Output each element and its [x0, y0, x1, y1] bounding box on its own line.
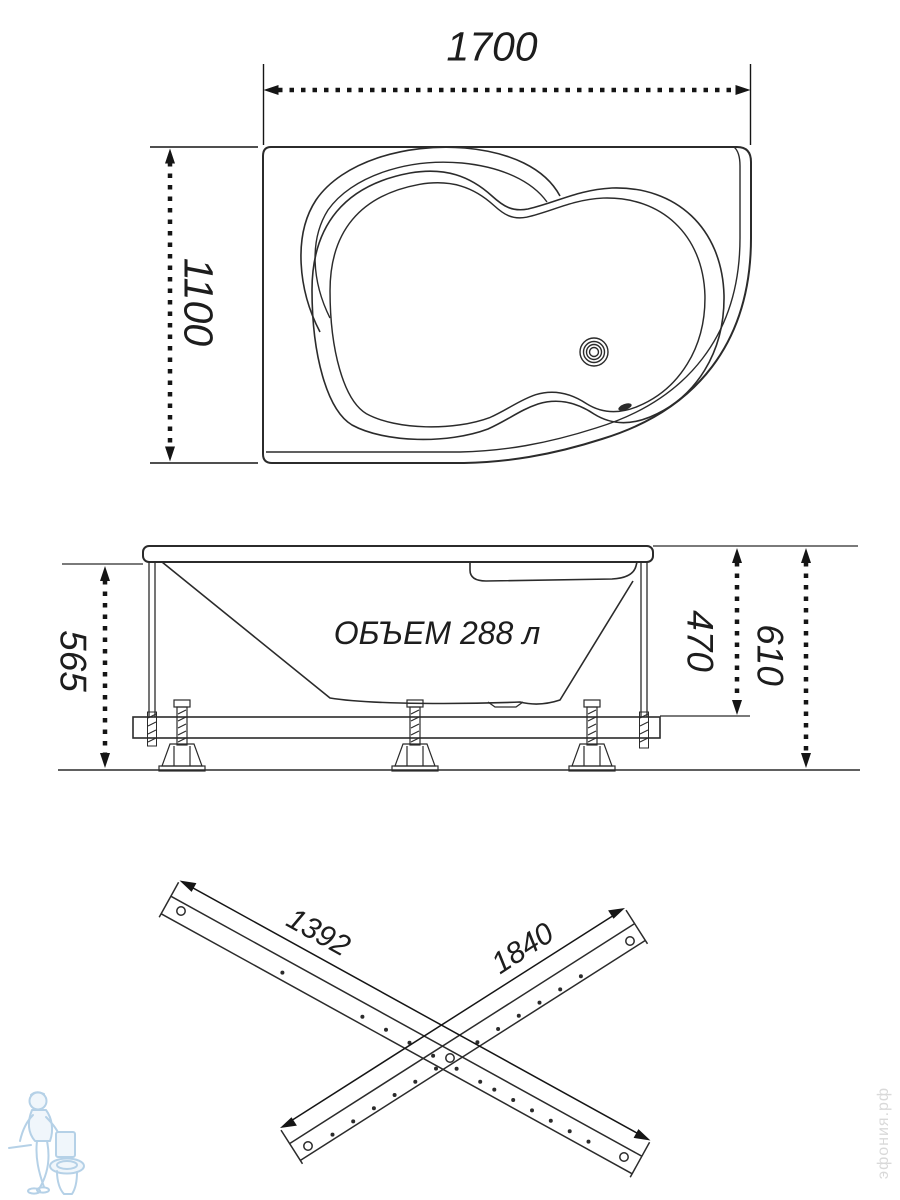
foot-right — [569, 700, 615, 771]
basin-inner-line — [330, 183, 705, 427]
frame-bar — [133, 717, 660, 738]
dimension-1392 — [180, 881, 651, 1141]
height-565-dimension-label: 565 — [55, 630, 92, 692]
adjustable-feet — [159, 700, 615, 771]
dimension-1700 — [264, 64, 751, 145]
drain-icon — [580, 338, 608, 366]
foot-middle — [392, 700, 438, 771]
basin-outline — [312, 171, 724, 439]
height-470-dimension-label: 470 — [682, 610, 719, 672]
dimension-470 — [732, 548, 742, 715]
rail-holes — [280, 971, 590, 1144]
site-watermark: эфония.рф — [875, 1087, 893, 1179]
blueprint-canvas: 1700 1100 ОБЪЕМ 288 л 565 470 610 1392 1… — [0, 0, 900, 1200]
foot-left — [159, 700, 205, 771]
bathtub-shell-outline — [263, 147, 751, 463]
dimension-565 — [100, 566, 110, 768]
rim-slab — [143, 546, 653, 562]
rail-holes — [331, 974, 583, 1136]
plan-depth-dimension-label: 1100 — [178, 258, 219, 346]
bathtub-technical-drawing — [0, 0, 900, 1200]
headrest-inner-line — [315, 162, 547, 318]
frame-rail-1392 — [159, 882, 649, 1177]
dimension-610 — [801, 548, 811, 768]
plan-view-drawing — [150, 64, 751, 463]
seat-ledge — [470, 562, 637, 581]
plan-width-dimension-label: 1700 — [446, 27, 537, 68]
height-610-dimension-label: 610 — [752, 624, 789, 686]
frame-rails-drawing — [159, 881, 650, 1178]
plumber-logo — [9, 1092, 84, 1194]
volume-label: ОБЪЕМ 288 л — [334, 617, 541, 649]
side-view-drawing — [58, 546, 860, 771]
toilet-icon — [50, 1132, 84, 1194]
